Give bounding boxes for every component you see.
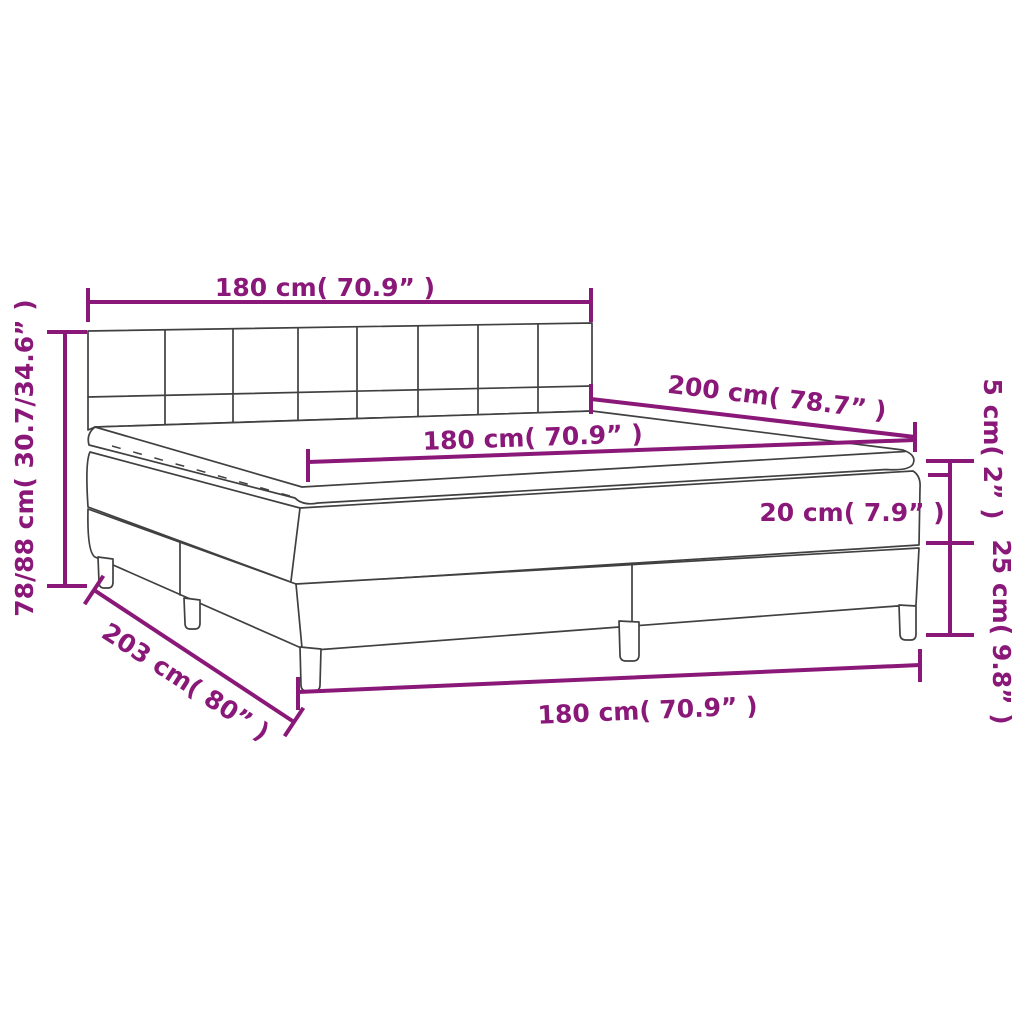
dim-total-height: 78/88 cm( 30.7/34.6” ) <box>10 299 87 616</box>
dim-headboard-width: 180 cm( 70.9” ) <box>88 273 591 322</box>
dim-total-height-label: 78/88 cm( 30.7/34.6” ) <box>10 299 39 616</box>
dim-headboard-width-label: 180 cm( 70.9” ) <box>215 273 435 302</box>
dim-right-height-stack: 5 cm( 2” ) 25 cm( 9.8” ) <box>926 378 1016 724</box>
dim-base-width-label: 180 cm( 70.9” ) <box>537 691 758 730</box>
dim-bed-length-label: 200 cm( 78.7” ) <box>666 370 888 426</box>
diagram-canvas: 180 cm( 70.9” ) 78/88 cm( 30.7/34.6” ) 2… <box>0 0 1024 1024</box>
leg-foot-mid <box>619 621 639 661</box>
dim-mattress-height: 20 cm( 7.9” ) <box>759 498 944 527</box>
leg-foot-right <box>899 605 916 640</box>
dim-total-height-line <box>47 332 87 586</box>
dim-right-stack-line <box>926 461 974 635</box>
dim-base-height-label: 25 cm( 9.8” ) <box>987 539 1016 724</box>
bed-dimension-diagram: 180 cm( 70.9” ) 78/88 cm( 30.7/34.6” ) 2… <box>0 0 1024 1024</box>
leg-foot-corner <box>300 647 321 691</box>
dim-topper-height-label: 5 cm( 2” ) <box>978 378 1007 519</box>
dim-base-length-label: 203 cm( 80” ) <box>97 617 275 747</box>
dim-mattress-height-label: 20 cm( 7.9” ) <box>759 498 944 527</box>
leg-side-mid <box>184 598 200 629</box>
dim-base-width: 180 cm( 70.9” ) <box>298 649 920 730</box>
